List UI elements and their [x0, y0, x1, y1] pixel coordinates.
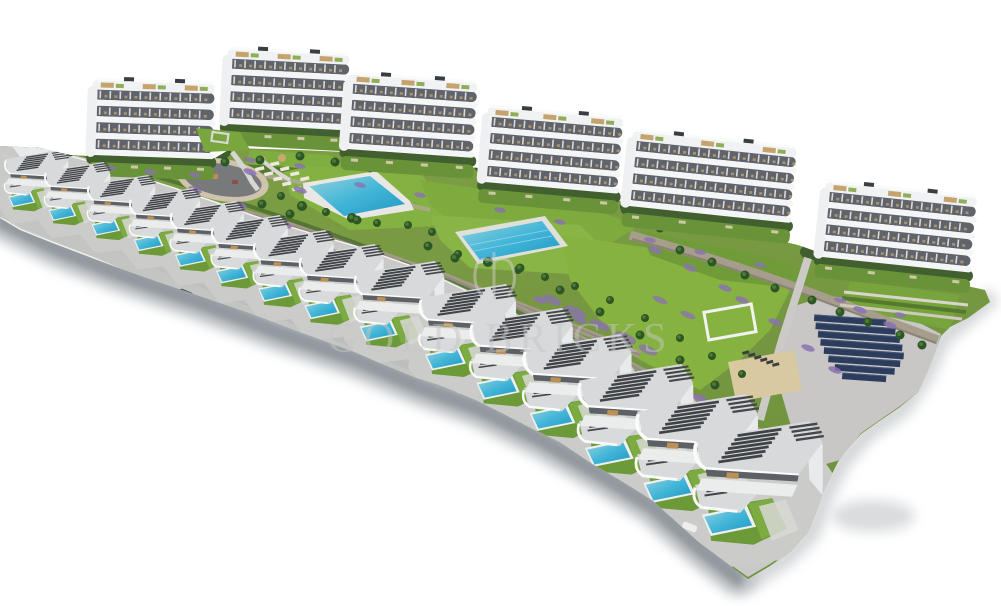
svg-text:GOLD BRICKS: GOLD BRICKS	[328, 316, 673, 362]
